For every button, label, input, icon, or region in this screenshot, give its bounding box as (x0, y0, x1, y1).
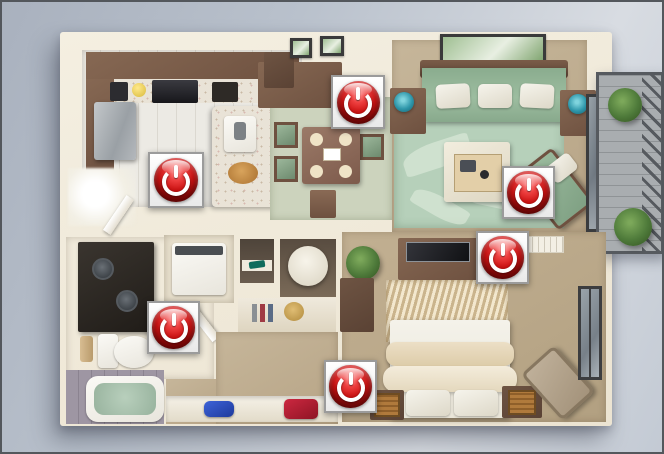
power-symbol-stem (174, 165, 178, 178)
power-icon (337, 81, 380, 124)
power-buttons-layer (2, 2, 664, 454)
floorplan-scene (0, 0, 664, 454)
power-icon (152, 306, 194, 348)
power-icon (481, 236, 523, 278)
power-symbol-stem (172, 313, 176, 326)
power-icon (329, 365, 371, 407)
power-button-dining-area[interactable] (331, 75, 385, 129)
power-symbol-stem (501, 243, 505, 256)
power-symbol-stem (527, 178, 531, 191)
power-button-bedroom[interactable] (476, 231, 529, 284)
power-button-living-room[interactable] (502, 166, 555, 219)
power-symbol-stem (349, 372, 353, 385)
power-button-kitchen[interactable] (148, 152, 204, 208)
power-button-bathroom[interactable] (147, 301, 200, 354)
power-icon (507, 171, 549, 213)
power-icon (154, 158, 199, 203)
power-symbol-stem (356, 87, 360, 100)
power-button-hallway[interactable] (324, 360, 377, 413)
